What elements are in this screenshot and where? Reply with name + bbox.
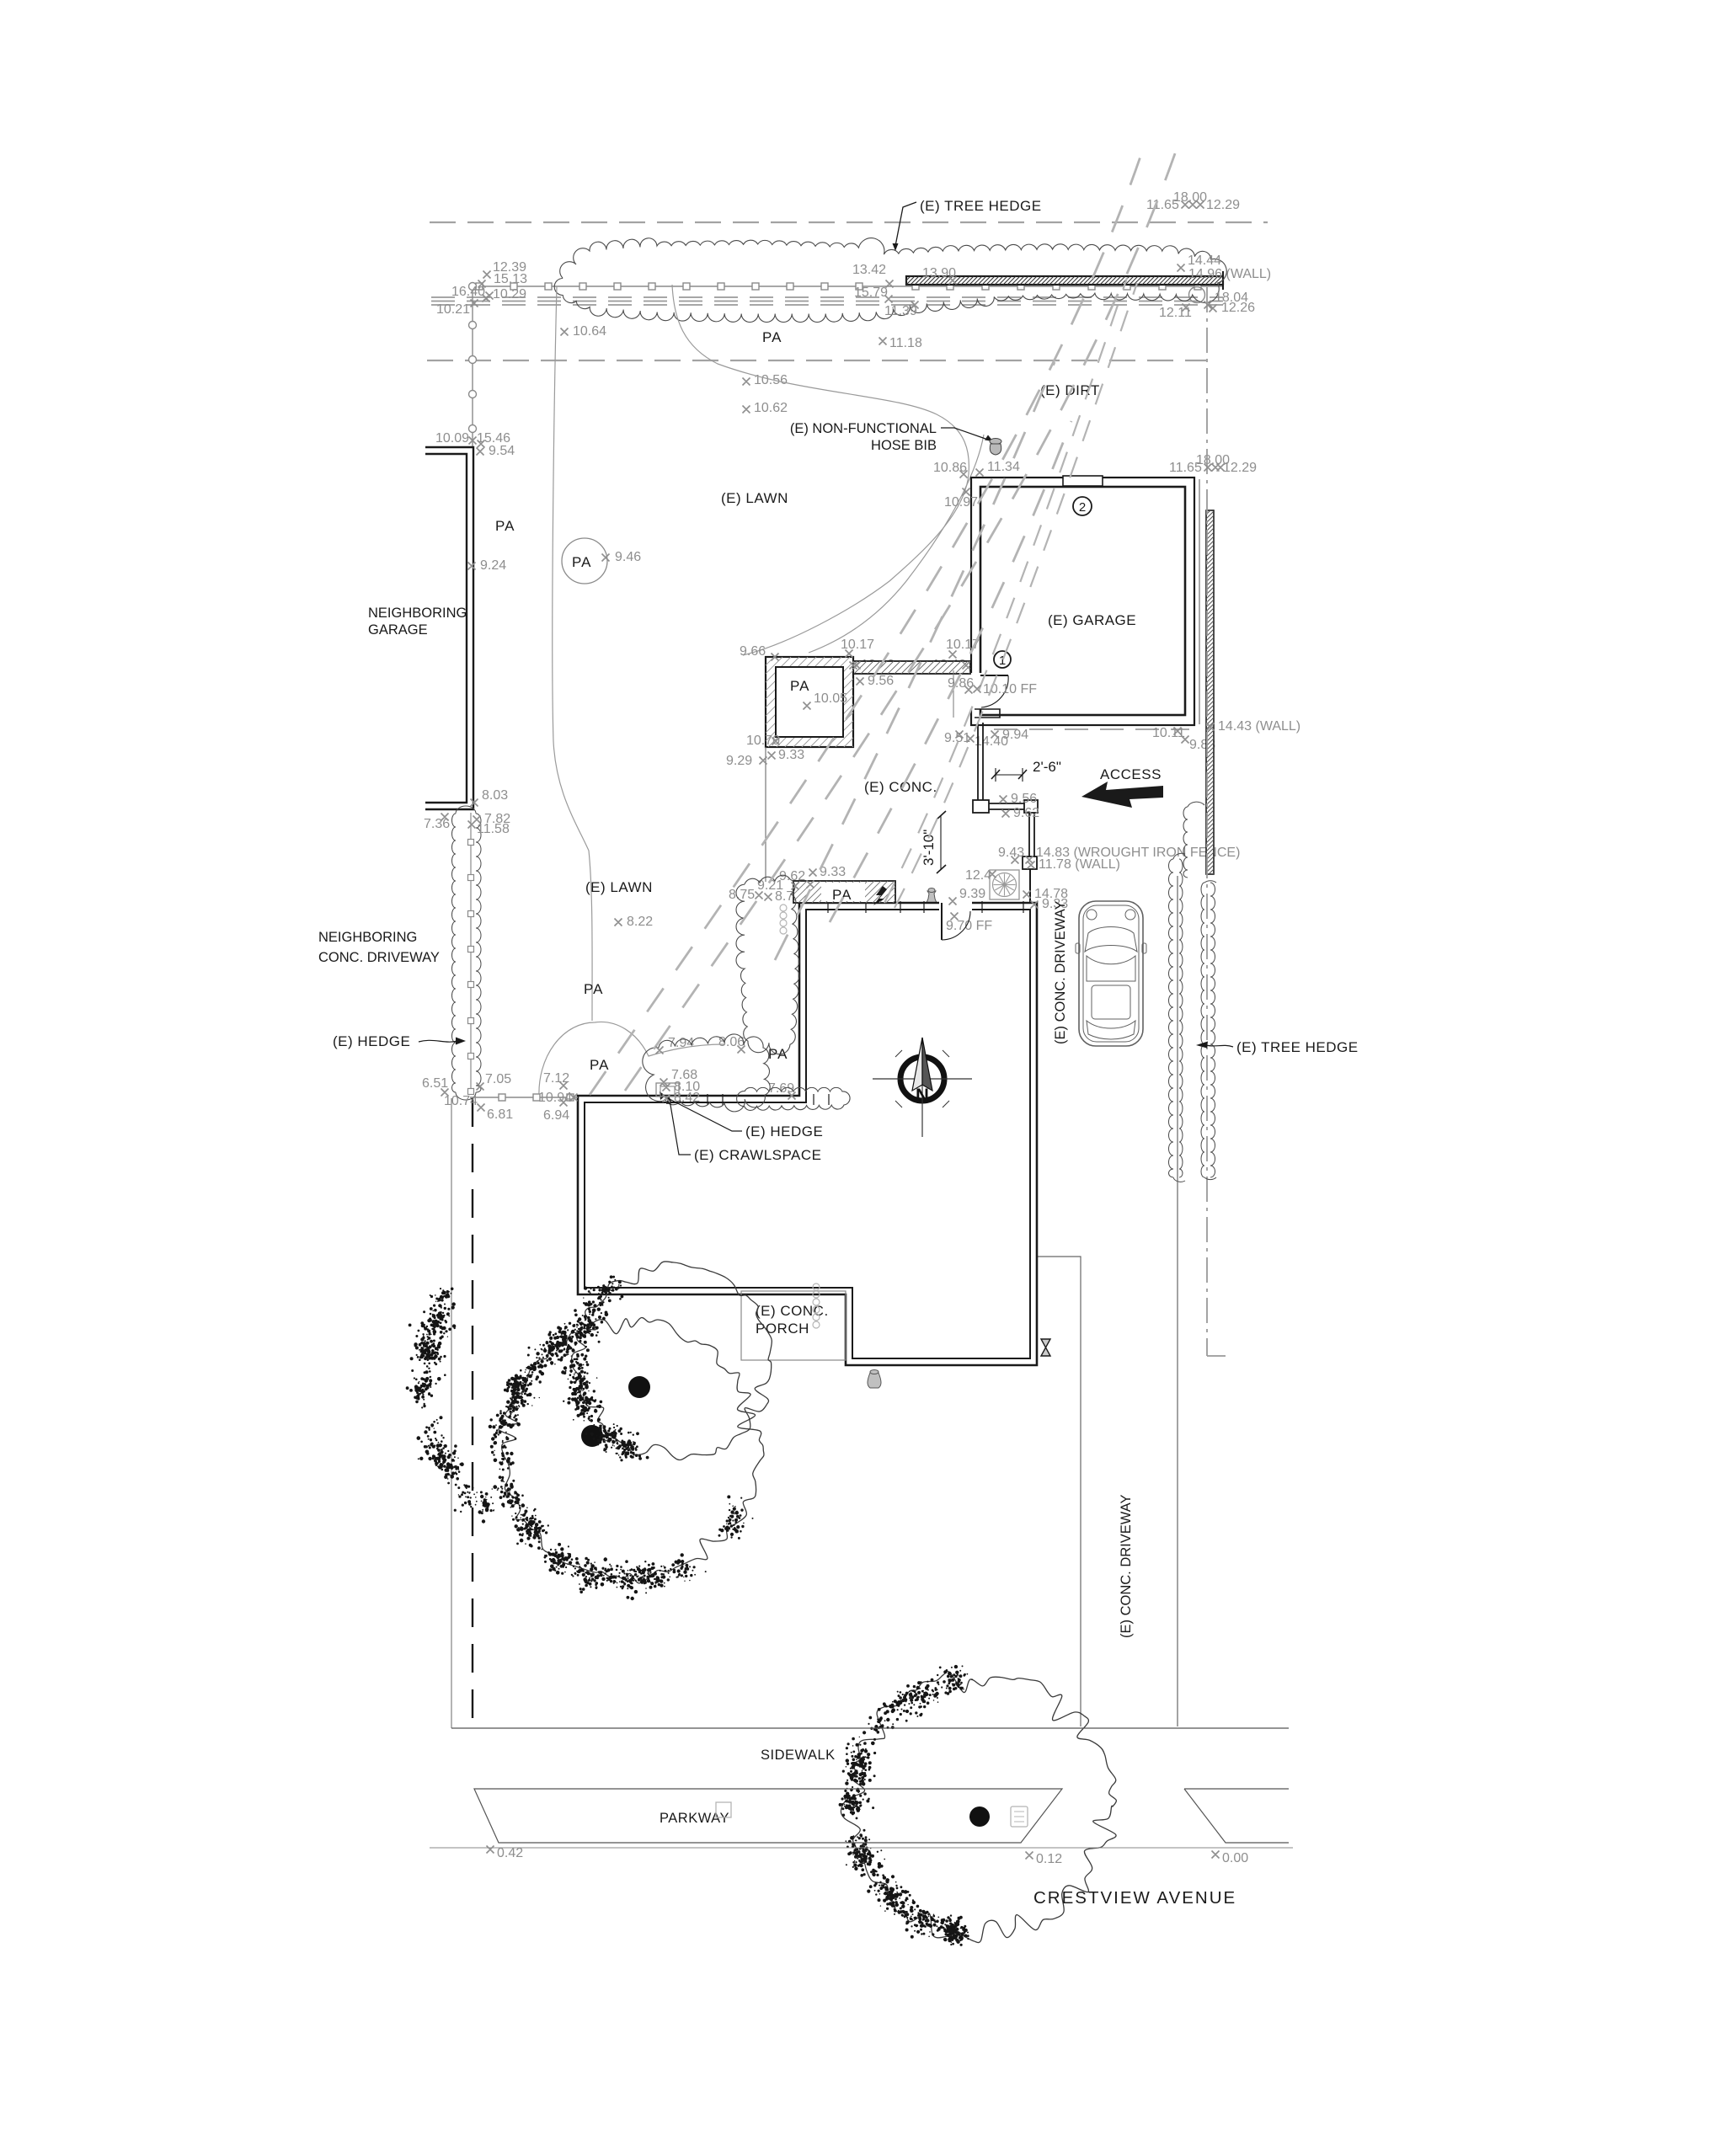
svg-text:(E) HEDGE: (E) HEDGE — [333, 1033, 410, 1049]
svg-text:(E) LAWN: (E) LAWN — [585, 879, 653, 895]
svg-text:0.42: 0.42 — [497, 1846, 523, 1860]
svg-text:9.56: 9.56 — [1011, 792, 1037, 806]
svg-text:PA: PA — [495, 518, 515, 534]
svg-text:9.56: 9.56 — [868, 674, 894, 688]
svg-text:10.97: 10.97 — [944, 495, 978, 510]
svg-text:PA: PA — [790, 678, 809, 694]
svg-text:10.94: 10.94 — [538, 1091, 572, 1105]
svg-text:CONC. DRIVEWAY: CONC. DRIVEWAY — [318, 950, 440, 965]
svg-text:15.13: 15.13 — [494, 272, 527, 286]
svg-text:14.43 (WALL): 14.43 (WALL) — [1218, 719, 1300, 734]
svg-text:11.18: 11.18 — [889, 336, 922, 350]
svg-text:10.56: 10.56 — [754, 373, 788, 387]
svg-text:9.24: 9.24 — [480, 558, 506, 573]
svg-text:(E) CONC. DRIVEWAY: (E) CONC. DRIVEWAY — [1119, 1494, 1134, 1638]
svg-text:PARKWAY: PARKWAY — [660, 1811, 729, 1826]
svg-text:14.96 (WALL): 14.96 (WALL) — [1188, 267, 1271, 281]
svg-text:SIDEWALK: SIDEWALK — [761, 1748, 836, 1763]
svg-text:HOSE BIB: HOSE BIB — [871, 438, 937, 453]
svg-text:11.65: 11.65 — [1146, 198, 1179, 212]
svg-text:12.26: 12.26 — [1221, 301, 1255, 315]
svg-text:9.33: 9.33 — [778, 748, 804, 762]
svg-text:NEIGHBORING: NEIGHBORING — [318, 930, 417, 945]
svg-text:PORCH: PORCH — [756, 1321, 809, 1337]
svg-text:(E) HEDGE: (E) HEDGE — [745, 1123, 823, 1139]
svg-text:12.29: 12.29 — [1206, 198, 1240, 212]
svg-text:9.46: 9.46 — [615, 550, 641, 564]
svg-text:9.29: 9.29 — [726, 754, 752, 768]
svg-text:8.75: 8.75 — [729, 888, 755, 902]
svg-text:PA: PA — [762, 329, 782, 345]
svg-text:16.40: 16.40 — [451, 285, 485, 299]
svg-text:(E) NON-FUNCTIONAL: (E) NON-FUNCTIONAL — [790, 421, 937, 436]
svg-text:8.22: 8.22 — [627, 915, 653, 929]
svg-text:10.29: 10.29 — [493, 287, 526, 302]
svg-text:14.44: 14.44 — [1188, 253, 1221, 268]
svg-text:10.05: 10.05 — [814, 691, 847, 706]
svg-text:11.78 (WALL): 11.78 (WALL) — [1039, 857, 1120, 872]
svg-text:PA: PA — [584, 981, 603, 997]
svg-text:6.81: 6.81 — [487, 1107, 513, 1122]
svg-text:ACCESS: ACCESS — [1100, 766, 1162, 782]
svg-text:8.7: 8.7 — [775, 889, 793, 904]
svg-text:2'-6": 2'-6" — [1033, 759, 1061, 775]
svg-text:10.74: 10.74 — [444, 1094, 478, 1108]
svg-text:6.51: 6.51 — [422, 1076, 448, 1091]
svg-text:12.29: 12.29 — [1223, 461, 1257, 475]
svg-text:10.64: 10.64 — [573, 324, 606, 339]
svg-text:0.00: 0.00 — [1222, 1851, 1248, 1865]
svg-text:11.34: 11.34 — [987, 460, 1020, 474]
svg-text:8.03: 8.03 — [482, 788, 508, 803]
svg-text:11.39: 11.39 — [884, 304, 917, 318]
svg-text:(E) GARAGE: (E) GARAGE — [1048, 612, 1136, 628]
svg-text:PA: PA — [590, 1057, 609, 1073]
svg-text:11.65: 11.65 — [1169, 461, 1202, 475]
svg-text:9.62: 9.62 — [779, 869, 805, 883]
svg-text:7.05: 7.05 — [485, 1072, 511, 1086]
svg-text:(E) CONC. DRIVEWAY: (E) CONC. DRIVEWAY — [1053, 900, 1068, 1044]
svg-text:10.21: 10.21 — [436, 302, 470, 317]
svg-text:2: 2 — [1079, 500, 1086, 515]
svg-text:CRESTVIEW AVENUE: CRESTVIEW AVENUE — [1033, 1888, 1236, 1908]
svg-text:9.66: 9.66 — [740, 644, 766, 659]
svg-text:13.42: 13.42 — [852, 263, 886, 277]
svg-text:11.58: 11.58 — [477, 822, 510, 836]
svg-text:(E) CRAWLSPACE: (E) CRAWLSPACE — [694, 1147, 822, 1163]
svg-text:(E) TREE HEDGE: (E) TREE HEDGE — [920, 198, 1042, 214]
svg-text:(E) TREE HEDGE: (E) TREE HEDGE — [1236, 1039, 1359, 1055]
svg-text:9.33: 9.33 — [820, 865, 846, 879]
svg-text:(E) LAWN: (E) LAWN — [721, 490, 788, 506]
svg-text:9.70 FF: 9.70 FF — [946, 919, 992, 933]
svg-text:GARAGE: GARAGE — [368, 622, 428, 638]
svg-text:0.12: 0.12 — [1036, 1852, 1062, 1866]
svg-text:9.43: 9.43 — [998, 846, 1024, 860]
svg-text:PA: PA — [572, 554, 591, 570]
svg-text:9.62: 9.62 — [1013, 806, 1039, 820]
svg-text:10.09: 10.09 — [435, 431, 469, 446]
svg-text:15.79: 15.79 — [854, 286, 888, 300]
svg-text:9.54: 9.54 — [489, 444, 515, 458]
svg-text:3'-10": 3'-10" — [921, 830, 937, 866]
svg-text:NEIGHBORING: NEIGHBORING — [368, 606, 467, 621]
svg-text:N: N — [916, 1085, 929, 1106]
svg-text:9.39: 9.39 — [959, 887, 985, 901]
svg-text:10.62: 10.62 — [754, 401, 788, 415]
svg-text:(E) CONC.: (E) CONC. — [864, 779, 937, 795]
svg-text:9.94: 9.94 — [1002, 728, 1028, 742]
svg-text:6.94: 6.94 — [543, 1108, 569, 1123]
